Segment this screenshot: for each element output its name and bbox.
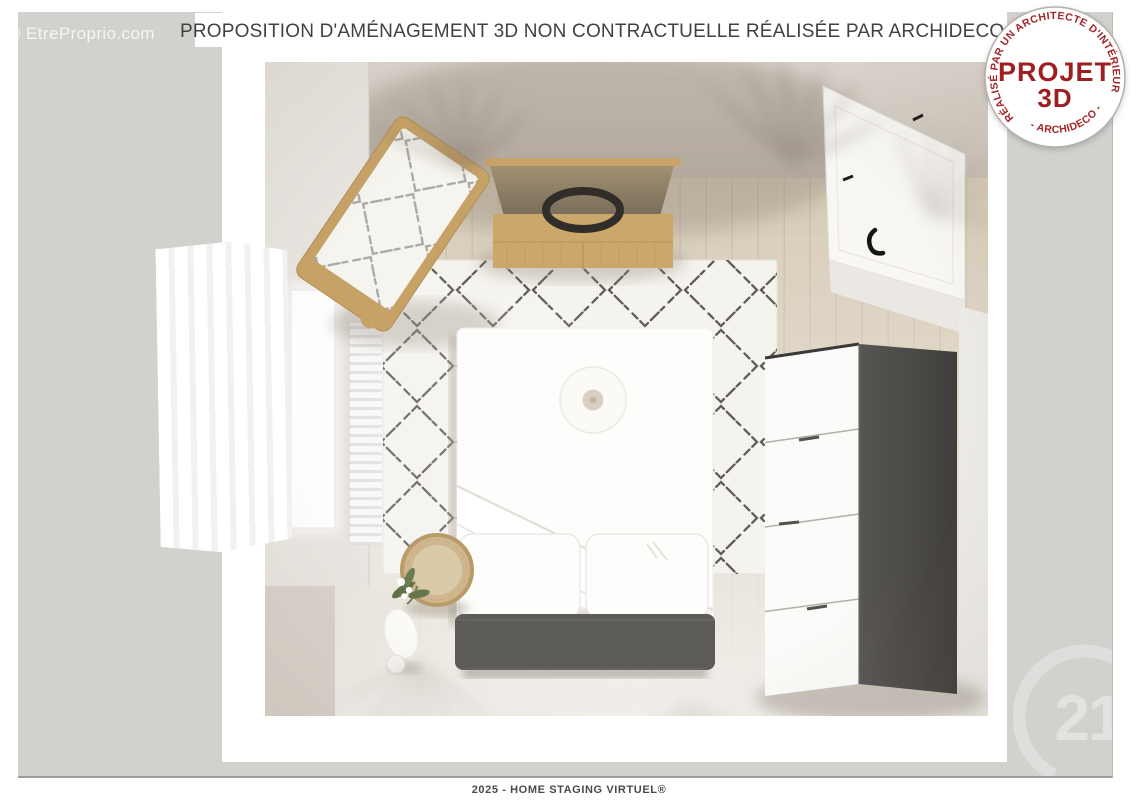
footer-bar: 2025 - HOME STAGING VIRTUEL® — [0, 780, 1138, 800]
footer-caption: 2025 - HOME STAGING VIRTUEL® — [472, 784, 667, 796]
vignette — [265, 62, 988, 716]
century21-logo: 21 — [1013, 632, 1113, 778]
room-render-image — [265, 62, 988, 716]
projet-3d-stamp: · RÉALISÉ PAR UN ARCHITECTE D'INTÉRIEUR … — [982, 4, 1128, 150]
etreproprio-watermark: © EtreProprio.com — [8, 24, 155, 44]
page-title: PROPOSITION D'AMÉNAGEMENT 3D NON CONTRAC… — [180, 21, 940, 43]
stamp-title-line2: 3D — [1037, 83, 1072, 113]
century21-number: 21 — [1054, 682, 1113, 754]
curtain-overflow — [155, 241, 292, 553]
